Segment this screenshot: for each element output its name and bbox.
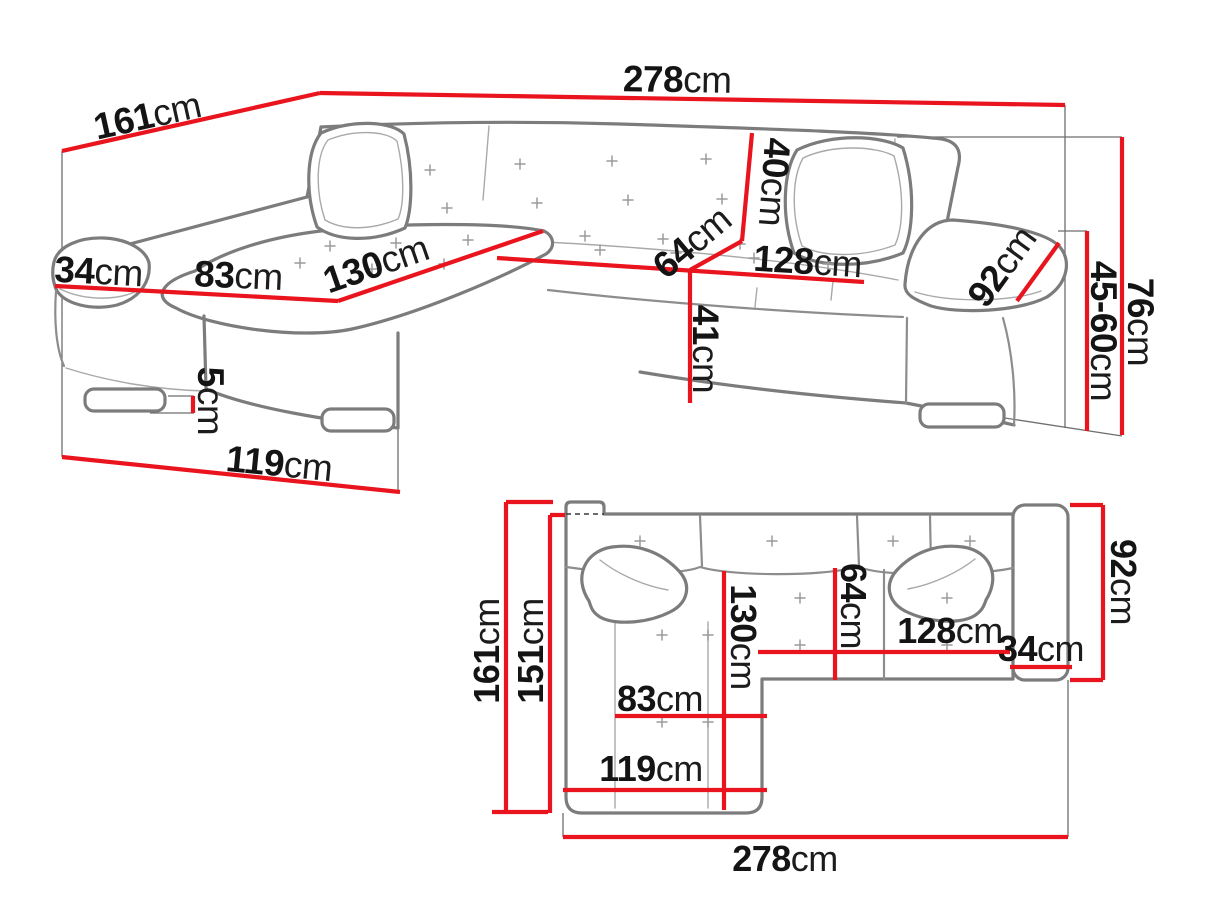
dim-label-chaise-depth: 151cm <box>510 598 551 704</box>
dim-label-width: 278cm <box>623 58 732 101</box>
dim-label-total-height: 76cm <box>1121 278 1162 366</box>
diagram-canvas: 161cm 278cm 34cm 83cm 130cm 64cm 40cm 12… <box>0 0 1214 911</box>
sofa-dimension-diagram: 161cm 278cm 34cm 83cm 130cm 64cm 40cm 12… <box>0 0 1214 911</box>
dim-label-chaise-front: 119cm <box>599 748 703 789</box>
sofa-foot <box>85 389 165 411</box>
sofa-foot <box>920 404 1004 427</box>
dim-label-total-depth: 161cm <box>466 598 507 704</box>
dim-label-side-depth: 92cm <box>1104 539 1145 625</box>
dim-label-seat-width: 128cm <box>897 610 1003 651</box>
dim-label-total-width: 278cm <box>732 838 838 879</box>
dim-label-armrest-width: 34cm <box>53 249 144 295</box>
perspective-view: 161cm 278cm 34cm 83cm 130cm 64cm 40cm 12… <box>53 58 1162 492</box>
dim-label-armrest-height: 45-60cm <box>1084 261 1125 401</box>
dim-label-armrest-width: 34cm <box>998 628 1084 669</box>
dim-label-depth: 161cm <box>90 84 205 148</box>
dim-label-chaise-front: 119cm <box>224 438 334 489</box>
dim-label-chaise-seat: 83cm <box>193 253 283 298</box>
dim-label-leg-height: 5cm <box>191 367 232 435</box>
dim-label-chaise-seat: 83cm <box>617 678 703 719</box>
dim-label-seat-width: 128cm <box>752 238 863 286</box>
sofa-foot <box>322 409 394 431</box>
dim-line-backrest-40 <box>742 133 752 241</box>
plan-view: 161cm 151cm 130cm 64cm 128cm 34cm 92cm 8… <box>466 502 1145 879</box>
dim-line-chaise-depth-151 <box>550 515 565 813</box>
dim-label-backrest-height: 40cm <box>751 136 798 227</box>
dim-label-seat-depth: 64cm <box>834 563 875 649</box>
dim-label-seat-height: 41cm <box>686 305 727 393</box>
dim-label-chaise-length: 130cm <box>724 584 765 690</box>
